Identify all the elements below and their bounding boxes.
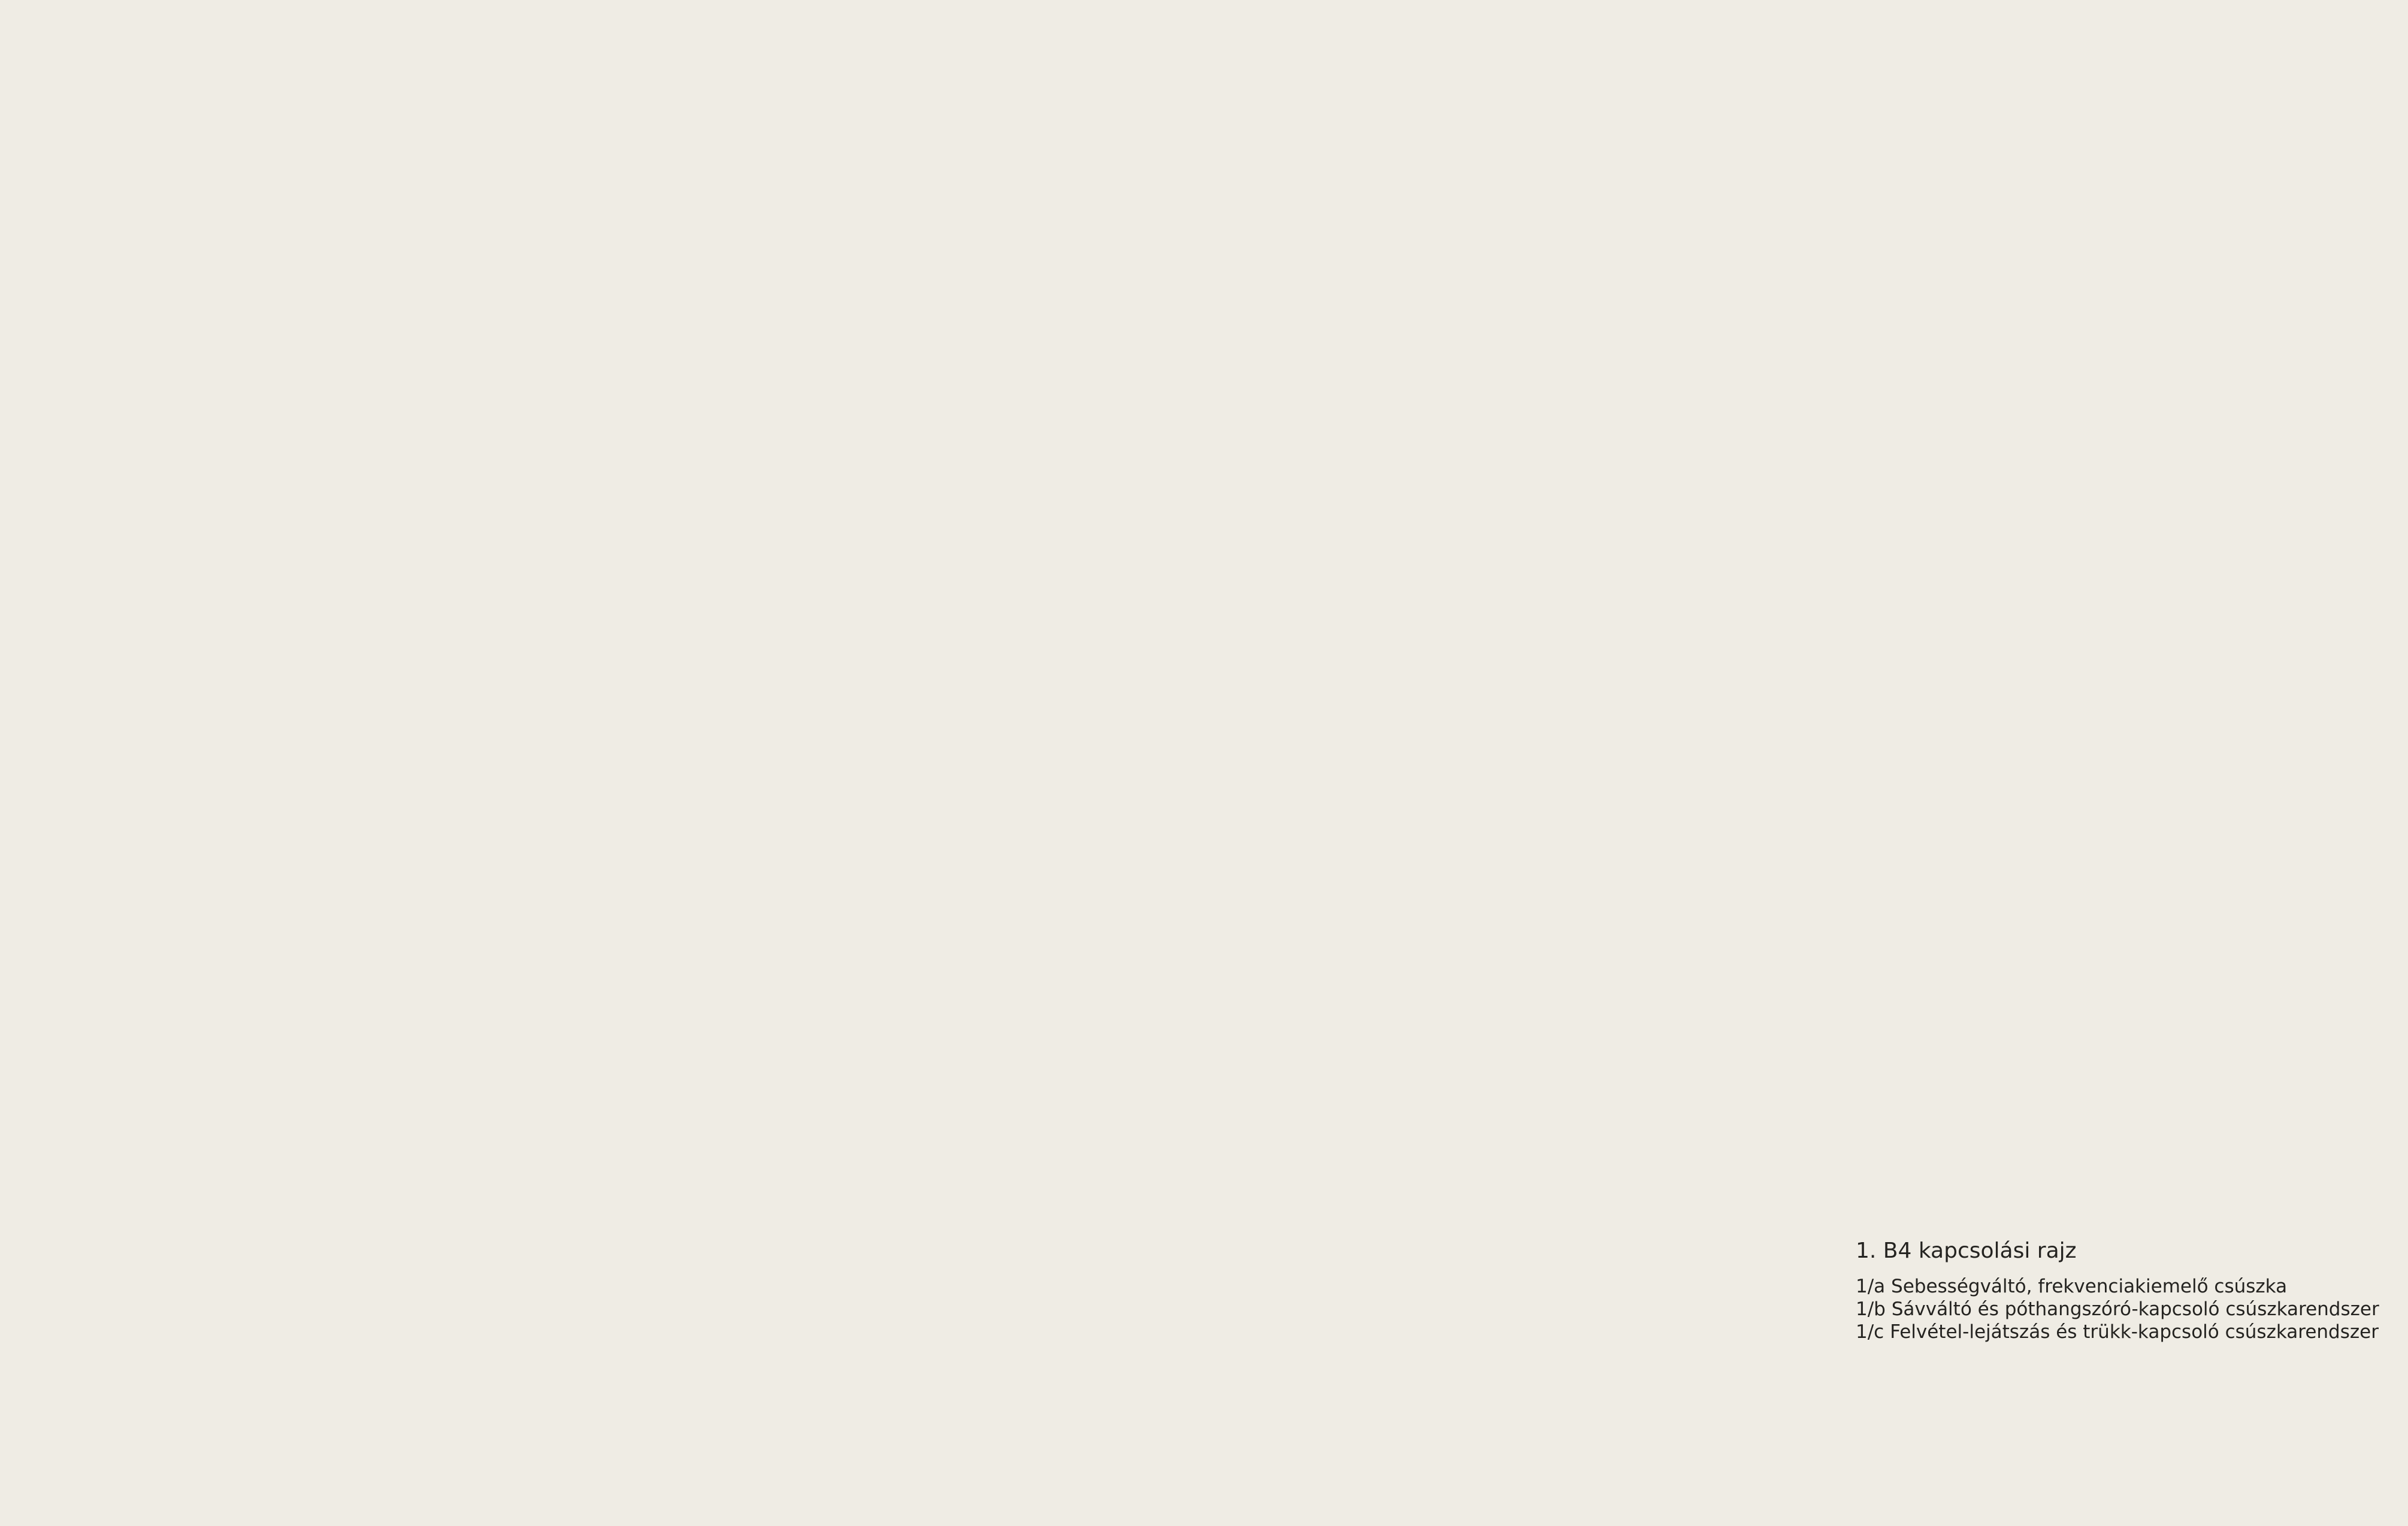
b4-schematic-canvas: 1. B4 kapcsolási rajz 1/a Sebességváltó,… <box>0 0 2408 1526</box>
note-1b: 1/b Sávváltó és póthangszóró-kapcsoló cs… <box>1856 1298 2379 1320</box>
schematic-page: 1. B4 kapcsolási rajz 1/a Sebességváltó,… <box>0 0 2408 1526</box>
note-1c: 1/c Felvétel-lejátszás és trükk-kapcsoló… <box>1856 1321 2379 1343</box>
note-1a: 1/a Sebességváltó, frekvenciakiemelő csú… <box>1856 1276 2287 1297</box>
note-title: 1. B4 kapcsolási rajz <box>1856 1239 2077 1263</box>
